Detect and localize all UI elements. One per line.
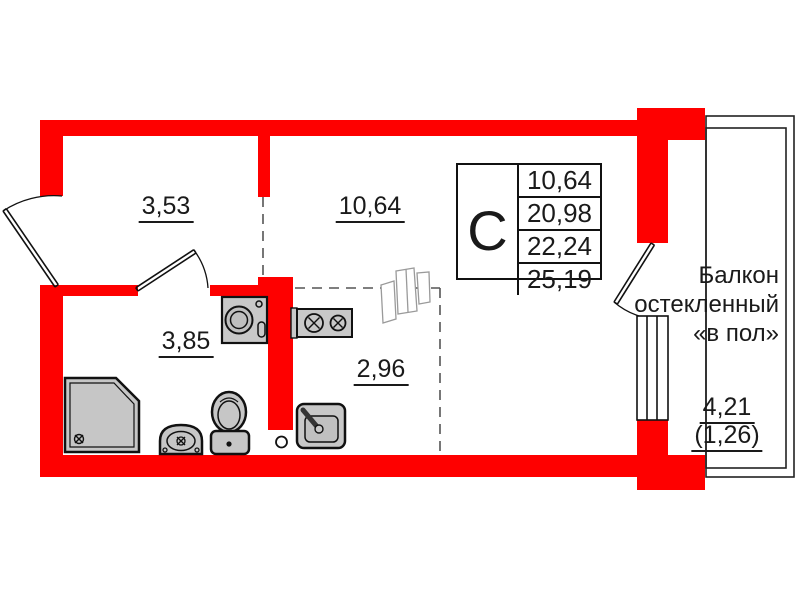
wardrobe-icon [381, 268, 430, 323]
entrance-door-icon [3, 196, 62, 287]
bathroom-area-label: 3,85 [159, 329, 214, 354]
toilet-icon [211, 392, 249, 454]
living-room-area-label: 10,64 [336, 194, 405, 219]
table-row-living-area: 10,64 [519, 165, 600, 196]
washing-machine-icon [222, 297, 267, 343]
bathroom-door-icon [136, 250, 208, 291]
stove-icon [291, 308, 352, 338]
kitchen-sink-icon [297, 404, 345, 448]
table-row-area-2: 20,98 [519, 196, 600, 229]
shower-tray-icon [65, 378, 139, 452]
kitchen-area-label: 2,96 [354, 357, 409, 382]
table-row-area-4: 25,19 [519, 262, 600, 295]
floor-plan: 3,53 10,64 3,85 2,96 Балкон остекленный … [0, 0, 800, 600]
balcony-area-coefficient-label: (1,26) [691, 423, 762, 448]
bathroom-sink-icon [160, 425, 202, 454]
shaft-circle-icon [276, 437, 287, 448]
apartment-type-cell: С [458, 165, 519, 295]
table-row-area-3: 22,24 [519, 229, 600, 262]
hallway-area-label: 3,53 [139, 194, 194, 219]
balcony-label: Балкон остекленный «в пол» [634, 261, 779, 348]
apartment-info-table: С 10,64 20,98 22,24 25,19 [456, 163, 602, 280]
balcony-area-label: 4,21 [700, 395, 755, 420]
